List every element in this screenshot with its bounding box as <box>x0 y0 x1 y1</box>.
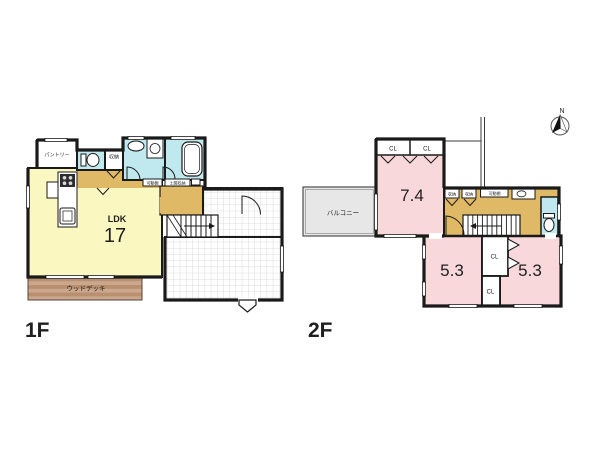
stove-icon <box>60 174 75 187</box>
doma-storage-label: 土間収納 <box>170 179 186 185</box>
washbasin-icon <box>128 141 144 151</box>
f1-entrance-tile-lower <box>165 237 282 300</box>
balcony-label: バルコニー <box>327 209 359 217</box>
compass-icon: N <box>551 108 569 135</box>
f1-toilet-icon <box>81 154 99 167</box>
washer-pan-icon <box>147 139 163 158</box>
f1-small-box <box>192 179 201 185</box>
floor-1f-label: 1F <box>25 319 50 342</box>
closet-label: 収納 <box>109 154 119 161</box>
movable-shelf-2f-label: 可動棚 <box>489 190 501 196</box>
storage-label-1: 収納 <box>448 190 456 197</box>
cl-label-4: CL <box>487 290 495 296</box>
floorplan-canvas: パントリー 収納 可動棚 土間収納 LDK 17 ウッドデッキ 1F <box>0 0 600 450</box>
cl-label-3: CL <box>491 255 499 261</box>
f1-stairs <box>167 215 218 237</box>
entrance-door-icon <box>239 300 256 312</box>
bathtub-icon <box>182 142 202 176</box>
f2-toilet-icon <box>544 214 555 232</box>
pantry-label: パントリー <box>44 153 69 159</box>
ldk-type-label: LDK <box>108 214 127 224</box>
f2-room-b-doorway <box>545 233 556 239</box>
floor-1f: パントリー 収納 可動棚 土間収納 LDK 17 ウッドデッキ 1F <box>25 136 284 342</box>
cl-label-2: CL <box>423 147 431 153</box>
storage-label-2: 収納 <box>465 190 473 197</box>
f1-ldk-opening <box>160 197 164 213</box>
f1-stair-hall <box>160 186 203 215</box>
cupboard-icon <box>47 182 58 198</box>
f2-wall-stub <box>481 117 485 188</box>
floor-2f-label: 2F <box>308 319 333 342</box>
f2-stairs <box>463 215 520 236</box>
compass-north-label: N <box>559 108 564 115</box>
f2-void-area <box>444 141 481 188</box>
room-b-size-label: 5.3 <box>518 261 542 280</box>
floor-2f: バルコニー CL CL 7.4 収納 収納 可動棚 CL CL 5.3 5.3 … <box>303 117 563 342</box>
room-a-size-label: 5.3 <box>440 261 464 280</box>
sink-icon <box>60 208 75 224</box>
room-main-size-label: 7.4 <box>400 186 424 205</box>
f2-room-a-doorway <box>429 233 442 239</box>
cl-label-1: CL <box>389 147 397 153</box>
f2-washbasin-icon <box>517 191 526 197</box>
floorplan-page: パントリー 収納 可動棚 土間収納 LDK 17 ウッドデッキ 1F <box>0 0 600 450</box>
ldk-size-label: 17 <box>104 225 126 247</box>
movable-shelf-label: 可動棚 <box>147 179 159 185</box>
wood-deck-label: ウッドデッキ <box>67 284 106 293</box>
